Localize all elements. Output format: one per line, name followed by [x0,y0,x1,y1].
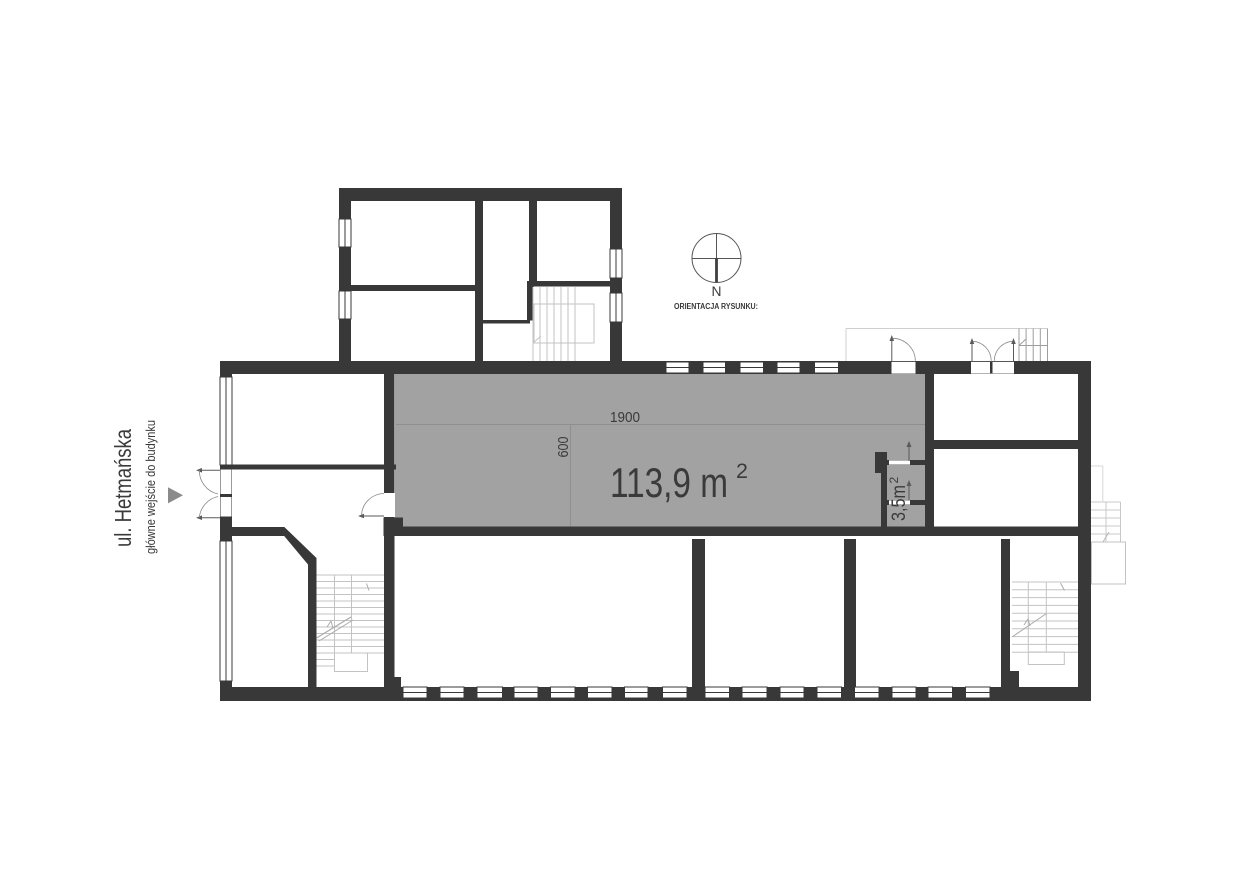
svg-text:1900: 1900 [610,409,640,426]
svg-text:2: 2 [736,459,748,483]
svg-text:ORIENTACJA RYSUNKU:: ORIENTACJA RYSUNKU: [674,302,758,311]
svg-text:3,5m: 3,5m [889,485,910,521]
svg-text:ul. Hetmańska: ul. Hetmańska [110,429,136,547]
svg-text:N: N [712,283,722,299]
svg-text:główne wejście do budynku: główne wejście do budynku [143,420,158,554]
svg-text:2: 2 [887,477,901,484]
svg-text:113,9 m: 113,9 m [610,459,728,506]
svg-text:600: 600 [555,437,572,458]
